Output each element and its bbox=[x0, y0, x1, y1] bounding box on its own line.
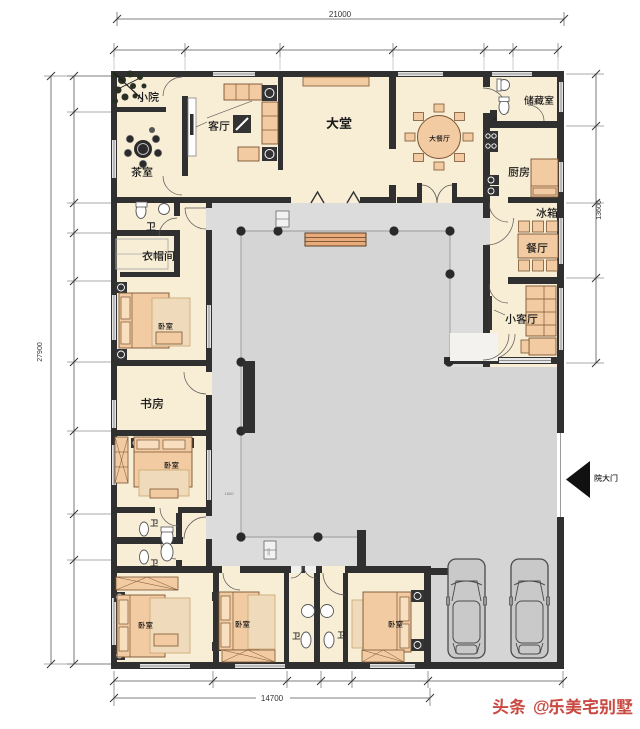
svg-text:27900: 27900 bbox=[37, 342, 44, 362]
svg-text:21000: 21000 bbox=[329, 10, 352, 19]
svg-text:14700: 14700 bbox=[261, 694, 284, 703]
svg-text:13600: 13600 bbox=[596, 200, 603, 220]
svg-text:1500: 1500 bbox=[267, 548, 271, 556]
svg-text:@: @ bbox=[533, 697, 550, 716]
svg-text:1500: 1500 bbox=[225, 491, 235, 496]
